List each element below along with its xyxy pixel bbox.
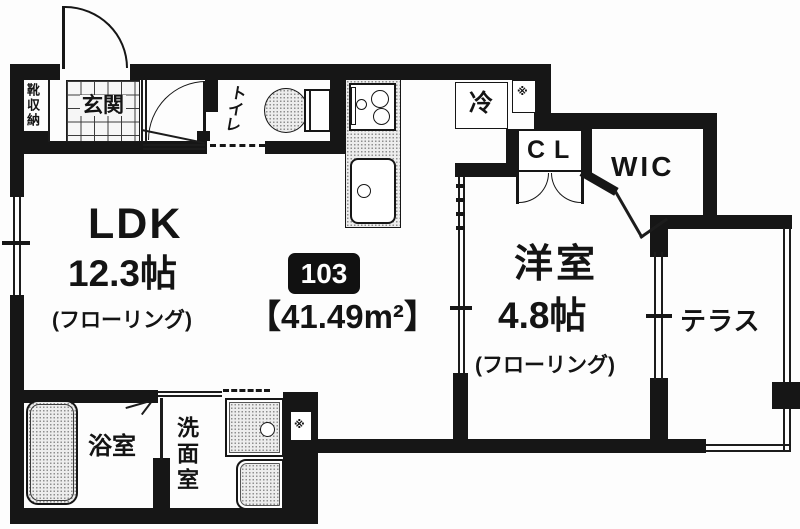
closet-door-panel [516,172,519,204]
bedroom-floor-type: (フローリング) [475,355,615,376]
stove-burner [371,90,389,108]
terrace-label: テラス [680,308,760,334]
wall [652,215,792,229]
threshold [158,395,222,397]
vanity-basin [240,463,280,506]
fridge-label: 冷 [469,92,493,116]
floor-plan: 冷 ※ CL ※ LDK 12.3帖 (フローリング) 103 【41.49m²… [0,0,800,529]
wall [330,64,345,144]
terrace-post [772,382,800,409]
ldk-floor-type: (フローリング) [52,310,192,331]
pipe-space-lower-mark: ※ [294,420,305,431]
bath-label: 浴室 [88,435,136,459]
threshold [143,144,205,146]
sliding-partition-ldk-bedroom [458,177,460,373]
opening-dashed [223,389,270,392]
wall [534,64,551,115]
terrace-fence-right [783,228,785,452]
terrace-fence-bottom [706,450,790,452]
window-tick [646,314,672,318]
window-tick [2,241,30,245]
sink-drain [357,184,371,198]
partition-dash [456,184,465,188]
stove-burner [356,99,367,110]
partition-line [48,80,50,142]
floor-area: 【41.49m²】 [248,300,437,333]
partition-dash [456,198,465,202]
wic-label: WIC [611,153,674,181]
partition-dash [456,212,465,216]
washroom-label: 洗面室 [175,416,197,511]
closet-label: CL [527,138,578,163]
toilet-label: トイレ [219,83,245,145]
sliding-partition-ldk-bedroom [463,177,465,373]
wic-door-swing [614,191,643,239]
wall [300,439,706,453]
wall [283,392,318,512]
stove-burner [373,108,390,125]
ldk-name: LDK [88,203,182,246]
window-ldk-left [13,197,15,295]
wall [650,378,668,442]
wall [453,373,468,440]
unit-number-badge: 103 [288,253,360,294]
threshold [158,391,222,393]
closet-door-arc [551,173,581,203]
stove-grill [351,87,356,125]
window-tick [450,306,472,310]
wall [10,508,318,524]
terrace-fence-bottom [706,444,790,446]
bedroom-name: 洋室 [514,245,598,284]
wall [10,388,24,524]
shoe-storage-label: 靴収納 [26,83,39,135]
opening-dashed [210,144,265,147]
toilet-tank-line [309,91,311,130]
ldk-size: 12.3帖 [68,255,177,292]
wall [534,113,717,129]
wall [205,78,218,112]
entrance-step-edge [145,80,147,142]
bedroom-size: 4.8帖 [498,297,586,334]
toilet-bowl [264,88,308,133]
toilet-door-stop [197,131,210,141]
entrance-step-edge [141,80,143,142]
threshold [143,148,205,150]
partition-dash [456,226,465,230]
entrance-label: 玄関 [80,95,126,116]
entrance-door-panel [62,6,65,69]
wall [703,113,717,222]
bathtub-inner [30,404,74,501]
window-ldk-left [19,197,21,295]
washer-knob [260,422,275,437]
wall [506,129,517,177]
bath-divider-line [160,398,163,460]
wall [153,458,170,510]
terrace-fence-right [789,228,791,452]
entrance-door-arc [65,6,128,68]
pipe-space-mark: ※ [517,87,528,98]
closet-door-arc [519,173,549,203]
